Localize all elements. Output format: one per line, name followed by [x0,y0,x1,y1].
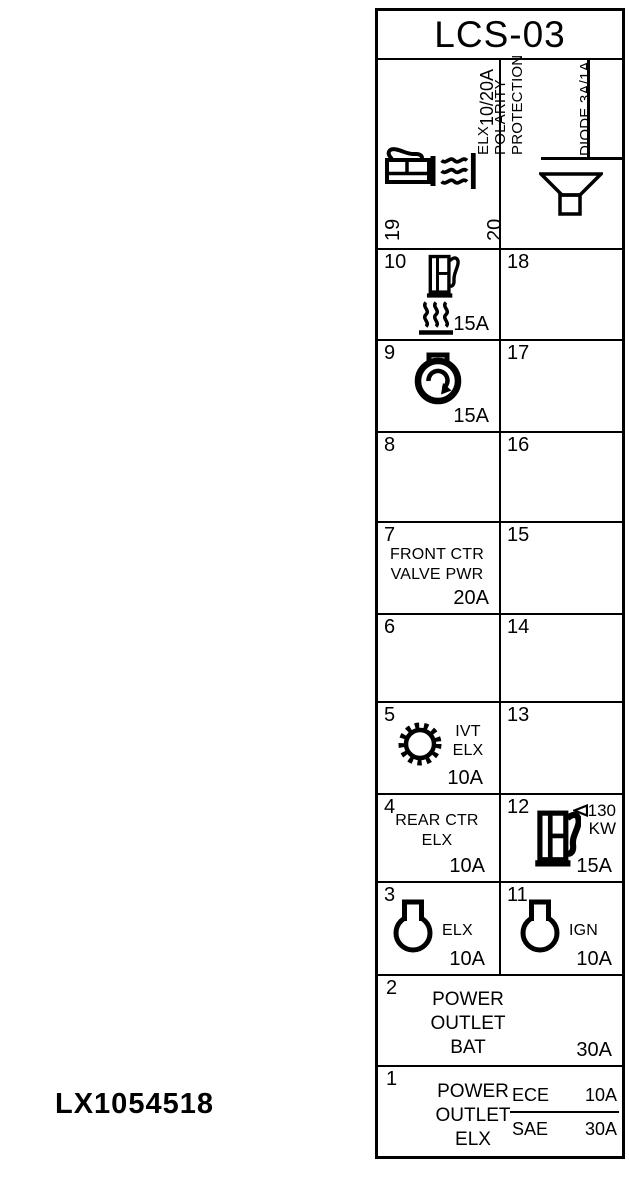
fuse-number: 12 [507,796,529,819]
fuse-number: 18 [507,251,529,274]
fuse-number: 16 [507,434,529,457]
ratings-divider-line [510,1111,619,1113]
fuse-cell-15: 15 [501,523,622,613]
fuse-cell-3: 3 ELX 10A [378,883,501,974]
fuse-1-ratings: ECE 10A SAE 30A [510,1085,619,1140]
fuse-number: 6 [384,616,395,639]
fuse-row-2: 2 POWER OUTLET BAT 30A [378,976,622,1067]
panel-title-row: LCS-03 [378,11,622,60]
label-underline [541,157,622,160]
fuse-label: FRONT CTR VALVE PWR [378,545,496,585]
figure-id-label: LX1054518 [55,1088,214,1121]
fuse-number: 19 [382,219,405,241]
fuse-cell-1: 1 POWER OUTLET ELX ECE 10A SAE 30A [378,1067,622,1156]
fuse-row-6-14: 6 14 [378,615,622,703]
fuse-cell-14: 14 [501,615,622,701]
fuse-label: POWER OUTLET BAT [378,988,558,1060]
fuse-20-diode-label: DIODE 3A/1A [576,61,593,156]
fuse-row-1: 1 POWER OUTLET ELX ECE 10A SAE 30A [378,1067,622,1156]
ece-amps: 10A [585,1085,617,1106]
fuse-cell-2: 2 POWER OUTLET BAT 30A [378,976,622,1065]
fuse-panel: LCS-03 19 [375,8,625,1159]
sae-amps: 30A [585,1119,617,1140]
fuse-cell-20: 20 ELX POLARITY PROTECTION DIODE 3A/1A [501,60,622,248]
fuel-pump-icon [426,254,460,298]
power-limit-label: 130 KW [573,802,616,838]
fuse-row-5-13: 5 IVT ELX 10A 13 [378,703,622,795]
fuse-amps: 20A [453,587,489,610]
fuse-cell-18: 18 [501,250,622,339]
fuse-cell-6: 6 [378,615,501,701]
fuse-row-9-17: 9 15A 17 [378,341,622,433]
ece-standard-label: ECE [512,1085,549,1106]
fuse-row-10-18: 10 15A 18 [378,250,622,341]
fuse-label: IVT ELX [448,722,488,760]
fuse-cell-8: 8 [378,433,501,521]
fuel-cap-rotate-icon [410,351,466,407]
gear-ring-icon [396,720,444,768]
sae-standard-label: SAE [512,1119,548,1140]
fuse-row-19-20: 19 10/20A [378,60,622,250]
panel-title: LCS-03 [434,14,565,56]
fuel-pump-icon [384,147,436,187]
fuse-cell-9: 9 15A [378,341,501,431]
fuse-amps: 15A [453,313,489,336]
limit-arrow-icon [573,804,588,817]
fuse-box-diagram: LCS-03 19 [0,0,629,1179]
fuse-20-label: ELX POLARITY PROTECTION [475,55,527,155]
fuse-row-4-12: 4 REAR CTR ELX 10A 12 130 KW [378,795,622,883]
fuse-cell-11: 11 IGN 10A [501,883,622,974]
fuse-label: IGN [569,921,598,941]
socket-bulb-icon [390,897,436,953]
fuse-number: 10 [384,251,406,274]
fuse-label: REAR CTR ELX [378,811,496,851]
fuse-amps: 10A [576,948,612,971]
heat-waves-icon [440,152,476,190]
fuse-cell-7: 7 FRONT CTR VALVE PWR 20A [378,523,501,613]
fuse-cell-5: 5 IVT ELX 10A [378,703,501,793]
fuse-amps: 10A [449,855,485,878]
fuse-number: 17 [507,342,529,365]
fuse-cell-13: 13 [501,703,622,793]
fuse-cell-16: 16 [501,433,622,521]
fuse-amps: 10A [447,767,483,790]
fuse-row-8-16: 8 16 [378,433,622,523]
speaker-horn-icon [539,172,603,218]
fuse-number: 20 [484,219,507,241]
heat-waves-icon [418,301,454,335]
fuse-number: 7 [384,524,395,547]
fuse-amps: 15A [453,405,489,428]
fuse-number: 13 [507,704,529,727]
fuse-amps: 15A [576,855,612,878]
fuse-cell-12: 12 130 KW 15A [501,795,622,881]
fuse-label: ELX [442,921,473,941]
fuse-cell-17: 17 [501,341,622,431]
fuse-number: 5 [384,704,395,727]
fuse-number: 15 [507,524,529,547]
fuse-number: 9 [384,342,395,365]
fuse-amps: 30A [576,1039,612,1062]
fuse-cell-10: 10 15A [378,250,501,339]
fuse-number: 8 [384,434,395,457]
fuse-cell-4: 4 REAR CTR ELX 10A [378,795,501,881]
socket-bulb-icon [517,897,563,953]
fuse-row-3-11: 3 ELX 10A 11 IGN 10A [378,883,622,976]
fuse-row-7-15: 7 FRONT CTR VALVE PWR 20A 15 [378,523,622,615]
fuse-amps: 10A [449,948,485,971]
fuse-number: 14 [507,616,529,639]
